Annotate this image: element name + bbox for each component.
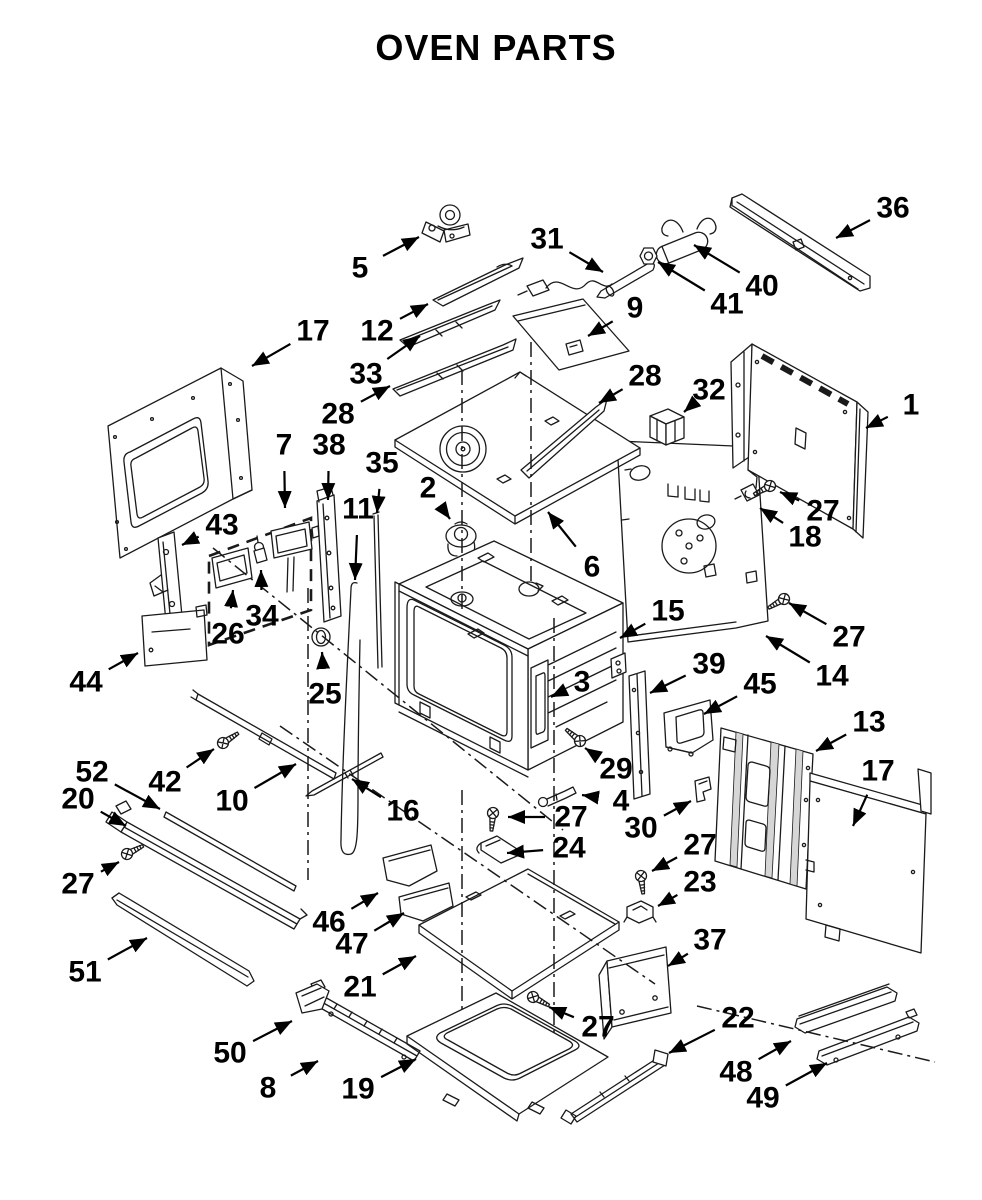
callout-number: 51: [68, 956, 101, 989]
part-trim-12: [433, 258, 523, 306]
part-hinge-rod-16: [306, 753, 383, 796]
callout-21: 21: [343, 956, 416, 1004]
callout-number: 27: [581, 1011, 614, 1044]
part-channel-rail-48: [795, 984, 897, 1033]
callout-number: 28: [321, 398, 354, 431]
callout-number: 36: [876, 192, 909, 225]
callout-29: 29: [585, 748, 633, 786]
callout-50: 50: [213, 1021, 292, 1070]
callout-number: 17: [296, 315, 329, 348]
callout-20: 20: [61, 783, 126, 827]
callout-17: 17: [252, 315, 330, 367]
part-bottom-panel-19: [407, 993, 608, 1121]
callout-number: 14: [815, 660, 849, 693]
part-rear-wall-14: [617, 441, 768, 642]
callout-38: 38: [312, 429, 345, 501]
part-hex-nut: [640, 248, 657, 264]
callout-4: 4: [582, 785, 630, 818]
callout-number: 15: [651, 595, 684, 628]
part-wire-trim-11: [341, 583, 360, 855]
callout-number: 21: [343, 971, 376, 1004]
callout-number: 47: [335, 928, 368, 961]
screw-27-mid-right: [766, 591, 792, 612]
callout-number: 24: [552, 832, 586, 865]
part-trim-rod-35: [373, 512, 382, 668]
callout-number: 22: [721, 1002, 754, 1035]
callout-number: 27: [554, 801, 587, 834]
callout-number: 1: [903, 389, 920, 422]
callout-number: 26: [211, 618, 244, 651]
part-latch-assembly: [150, 532, 182, 622]
part-heat-deflector-46: [383, 845, 437, 886]
callout-44: 44: [69, 653, 138, 699]
part-rear-cover-9: [513, 299, 629, 370]
callout-number: 6: [584, 551, 601, 584]
page-title: OVEN PARTS: [375, 27, 616, 68]
callout-24: 24: [507, 832, 586, 865]
callout-16: 16: [352, 779, 420, 828]
callout-number: 38: [312, 429, 345, 462]
callout-number: 42: [148, 766, 181, 799]
callout-number: 25: [308, 678, 341, 711]
callout-number: 10: [215, 785, 248, 818]
callout-number: 29: [599, 753, 632, 786]
callout-11: 11: [342, 493, 374, 581]
callout-number: 27: [683, 829, 716, 862]
callout-number: 8: [260, 1072, 277, 1105]
part-shield-bracket-45: [664, 700, 713, 756]
callout-number: 12: [360, 315, 393, 348]
callout-number: 34: [245, 600, 279, 633]
callout-number: 23: [683, 866, 716, 899]
part-clamp-bracket-23: [624, 901, 656, 923]
oven-parts-diagram: OVEN PARTS: [0, 0, 982, 1200]
callout-27: 27: [789, 603, 866, 654]
callout-number: 37: [693, 924, 726, 957]
callout-13: 13: [816, 706, 886, 752]
part-junction-box-32: [650, 409, 684, 445]
callout-number: 19: [341, 1073, 374, 1106]
part-latch-motor: [422, 205, 470, 242]
part-sensor-34: [254, 536, 267, 563]
callout-1: 1: [866, 389, 919, 429]
callout-number: 2: [420, 472, 437, 505]
callout-5: 5: [352, 237, 419, 285]
callout-32: 32: [684, 374, 726, 413]
callout-number: 41: [710, 288, 743, 321]
callout-19: 19: [341, 1059, 416, 1106]
screw-27-center: [486, 807, 499, 831]
callout-42: 42: [148, 749, 214, 799]
callout-7: 7: [276, 429, 293, 509]
callout-36: 36: [836, 192, 910, 239]
callout-10: 10: [215, 764, 296, 818]
part-access-panel-44: [142, 605, 207, 666]
screw-42: [215, 729, 241, 751]
callout-number: 5: [352, 252, 369, 285]
callout-number: 30: [624, 812, 657, 845]
callout-25: 25: [308, 652, 341, 711]
callout-37: 37: [668, 924, 727, 967]
callout-number: 35: [365, 447, 398, 480]
part-igniter: [654, 218, 716, 266]
callout-28: 28: [599, 360, 662, 404]
part-side-panel-right-17: [806, 769, 931, 953]
part-retainer-clip-24: [477, 836, 517, 863]
oven-parts-diagram-page: OVEN PARTS: [0, 0, 982, 1200]
callout-27: 27: [61, 862, 119, 901]
callout-22: 22: [669, 1002, 755, 1054]
callout-28: 28: [321, 386, 390, 431]
callout-number: 49: [746, 1082, 779, 1115]
callout-number: 7: [276, 429, 293, 462]
callout-39: 39: [650, 648, 726, 694]
callout-number: 40: [745, 270, 778, 303]
callout-51: 51: [68, 938, 147, 989]
part-round-grommet-25: [312, 628, 330, 646]
part-clip-30: [695, 777, 711, 802]
callout-number: 27: [61, 868, 94, 901]
callout-number: 11: [342, 493, 374, 526]
callout-number: 44: [69, 666, 103, 699]
callout-number: 39: [692, 648, 725, 681]
callout-number: 18: [788, 521, 821, 554]
part-lower-trim-bar-51: [112, 893, 254, 986]
callout-30: 30: [624, 801, 691, 845]
callout-23: 23: [658, 866, 717, 907]
screw-27-lower-right: [635, 870, 649, 895]
callout-number: 3: [574, 666, 591, 699]
callout-49: 49: [746, 1063, 827, 1115]
callout-number: 20: [61, 783, 94, 816]
callout-31: 31: [530, 223, 603, 273]
callout-number: 31: [530, 223, 563, 256]
callout-number: 17: [861, 755, 894, 788]
screw-27-bottom: [526, 990, 552, 1011]
callout-number: 27: [832, 621, 865, 654]
callout-number: 43: [205, 509, 238, 542]
callout-41: 41: [658, 262, 744, 321]
callout-26: 26: [211, 590, 244, 651]
part-end-cap-50: [296, 984, 329, 1013]
part-side-bracket-38: [312, 487, 341, 622]
callout-number: 28: [628, 360, 661, 393]
callout-34: 34: [245, 570, 279, 633]
callout-number: 16: [386, 795, 419, 828]
callout-8: 8: [260, 1061, 318, 1105]
parts-layer: [106, 194, 931, 1124]
part-insulation-panel-13: [715, 728, 813, 889]
callout-number: 9: [627, 292, 644, 325]
callout-number: 32: [692, 374, 725, 407]
callout-number: 50: [213, 1037, 246, 1070]
callout-number: 13: [852, 706, 885, 739]
callout-number: 45: [743, 668, 776, 701]
callout-number: 33: [349, 358, 382, 391]
part-control-display-7: [271, 522, 312, 592]
